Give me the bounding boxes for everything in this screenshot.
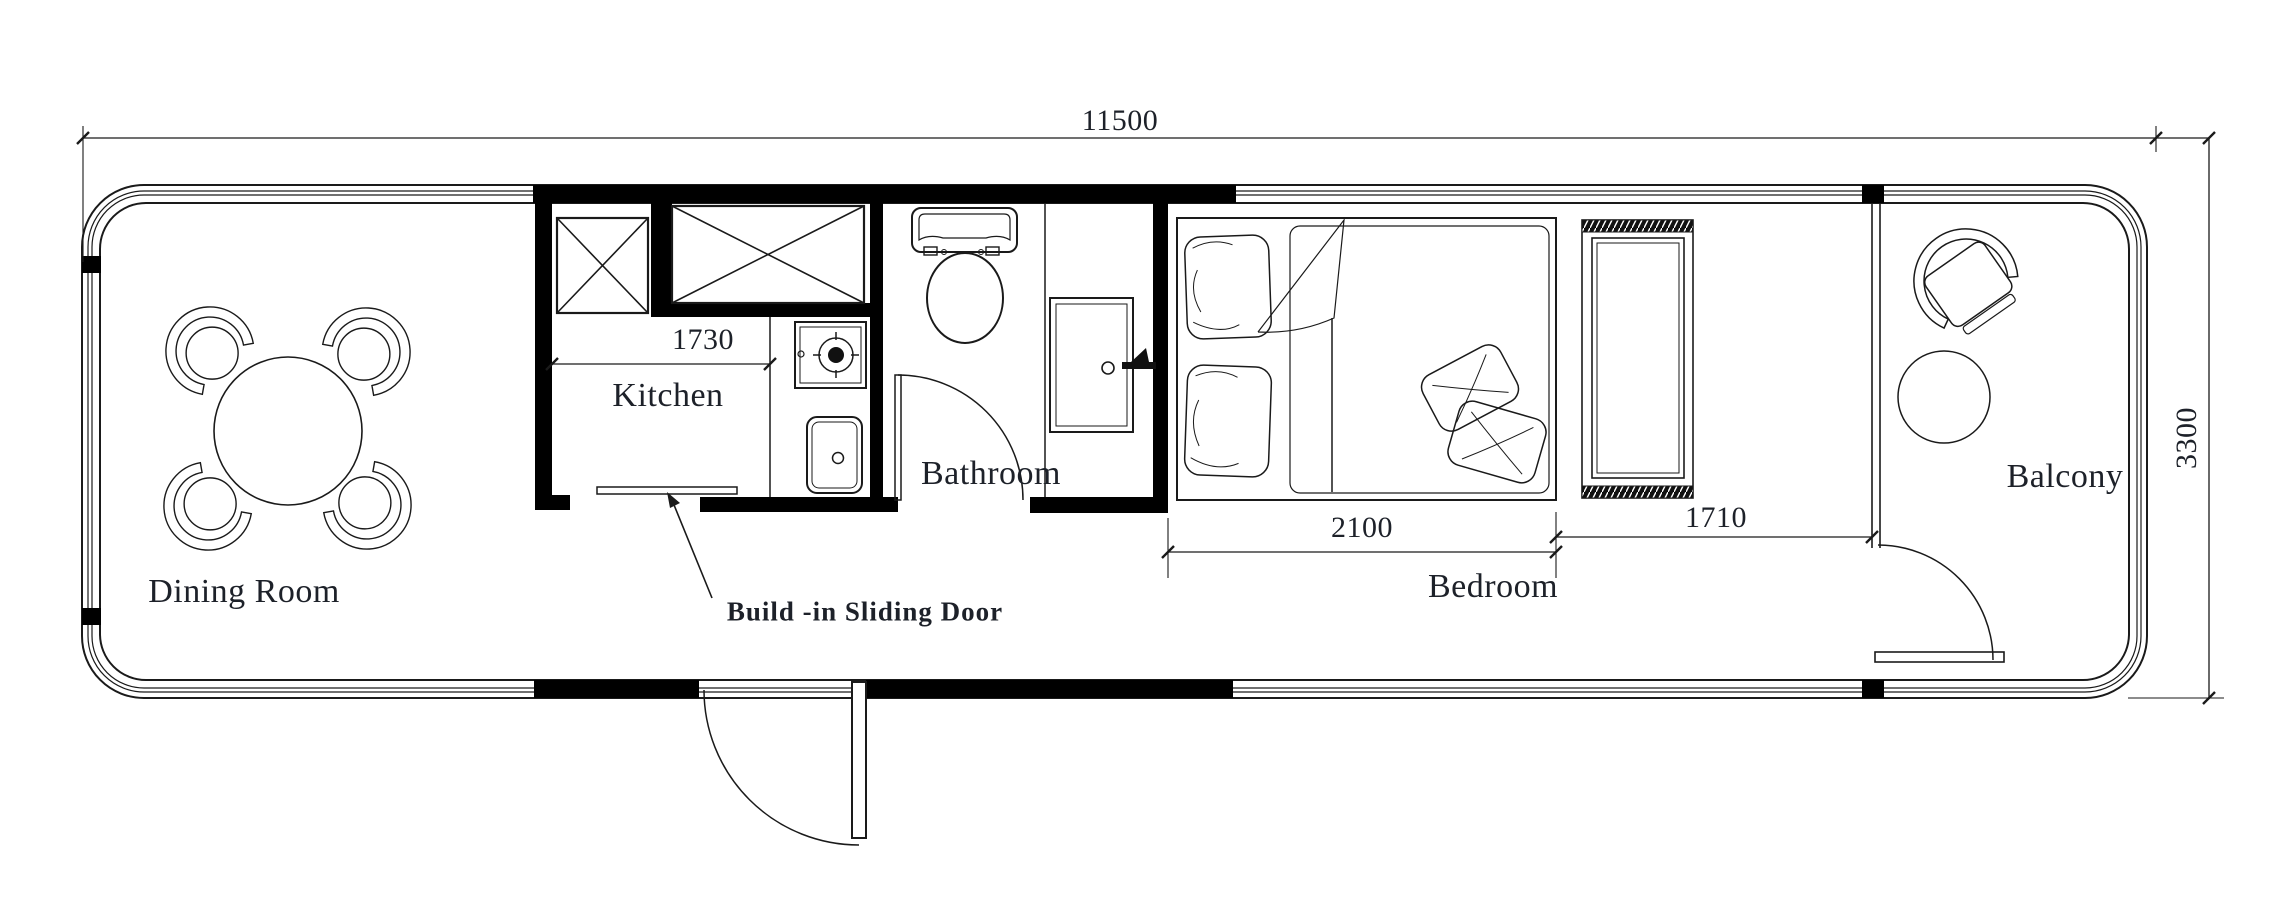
- room-label-bathroom: Bathroom: [921, 455, 1061, 493]
- left-wall-stub-top: [82, 256, 101, 273]
- left-wall-stub-bottom: [82, 608, 101, 625]
- kitchen-bottom-wall: [700, 497, 898, 512]
- dining-chair-icon: [315, 453, 429, 567]
- kitchen-left-wall: [535, 200, 552, 510]
- bedroom-furniture: [1177, 218, 1693, 500]
- outer-shell-window-lines: [82, 185, 2147, 698]
- dim-kitchen-width: [546, 358, 776, 370]
- dining-chair-icon: [148, 289, 262, 403]
- dim-label-wardrobe-zone: 1710: [1685, 501, 1747, 535]
- balcony-table-icon: [1898, 351, 1990, 443]
- blanket-fold: [1258, 220, 1344, 492]
- throw-pillow: [1445, 398, 1550, 486]
- top-wall-solid: [533, 185, 1236, 203]
- bed: [1177, 218, 1556, 500]
- room-label-dining: Dining Room: [148, 573, 340, 611]
- entrance-door-leaf: [852, 682, 866, 838]
- kitchen-counter-cabinet-icon: [672, 206, 864, 303]
- annotation-sliding-door: Build -in Sliding Door: [727, 597, 1003, 628]
- dim-label-total-width: 3300: [2170, 407, 2204, 469]
- toilet-icon: [912, 208, 1017, 343]
- dim-label-bed-length: 2100: [1331, 511, 1393, 545]
- kitchen-left-wall-foot: [535, 495, 570, 510]
- sink-icon: [807, 417, 862, 493]
- bottom-wall-balcony-post: [1862, 680, 1884, 698]
- pillow: [1184, 235, 1272, 340]
- room-label-balcony: Balcony: [2007, 458, 2124, 496]
- dining-chair-icon: [146, 454, 260, 568]
- floor-plan: 11500 3300 1730 2100 1710 Dining Room Ki…: [0, 0, 2277, 903]
- bottom-wall-solid-left: [534, 680, 699, 698]
- dining-table-icon: [214, 357, 362, 505]
- kitchen-cabinet-icon: [557, 218, 648, 313]
- wardrobe: [1582, 220, 1693, 498]
- throw-pillow: [1417, 340, 1524, 436]
- entrance-door: [704, 682, 866, 845]
- dim-label-total-length: 11500: [1082, 104, 1158, 138]
- top-wall-balcony-post: [1862, 185, 1884, 203]
- sliding-door-panel: [597, 487, 737, 494]
- cabinet-frame-bottom: [651, 303, 883, 317]
- balcony-partition: [1872, 203, 1880, 548]
- interior-walls: [535, 200, 1168, 513]
- bottom-wall-solid-right: [866, 680, 1233, 698]
- room-label-kitchen: Kitchen: [612, 377, 723, 415]
- stove-icon: [795, 322, 866, 388]
- entrance-door-swing-arc: [704, 690, 859, 845]
- balcony-area: [1872, 203, 2034, 662]
- bathroom-bottom-wall: [1030, 497, 1168, 513]
- balcony-door: [1875, 545, 2004, 662]
- dining-furniture: [146, 289, 430, 569]
- kitchen-bathroom-wall: [870, 200, 883, 507]
- room-label-bedroom: Bedroom: [1428, 568, 1558, 606]
- pillow: [1184, 365, 1272, 478]
- dim-label-kitchen-width: 1730: [672, 323, 734, 357]
- cabinet-frame-left: [651, 200, 672, 317]
- armchair-icon: [1894, 209, 2035, 348]
- shower-cabinet-icon: [1050, 298, 1156, 432]
- dining-chair-icon: [314, 290, 428, 404]
- bathroom-bedroom-wall: [1153, 200, 1168, 512]
